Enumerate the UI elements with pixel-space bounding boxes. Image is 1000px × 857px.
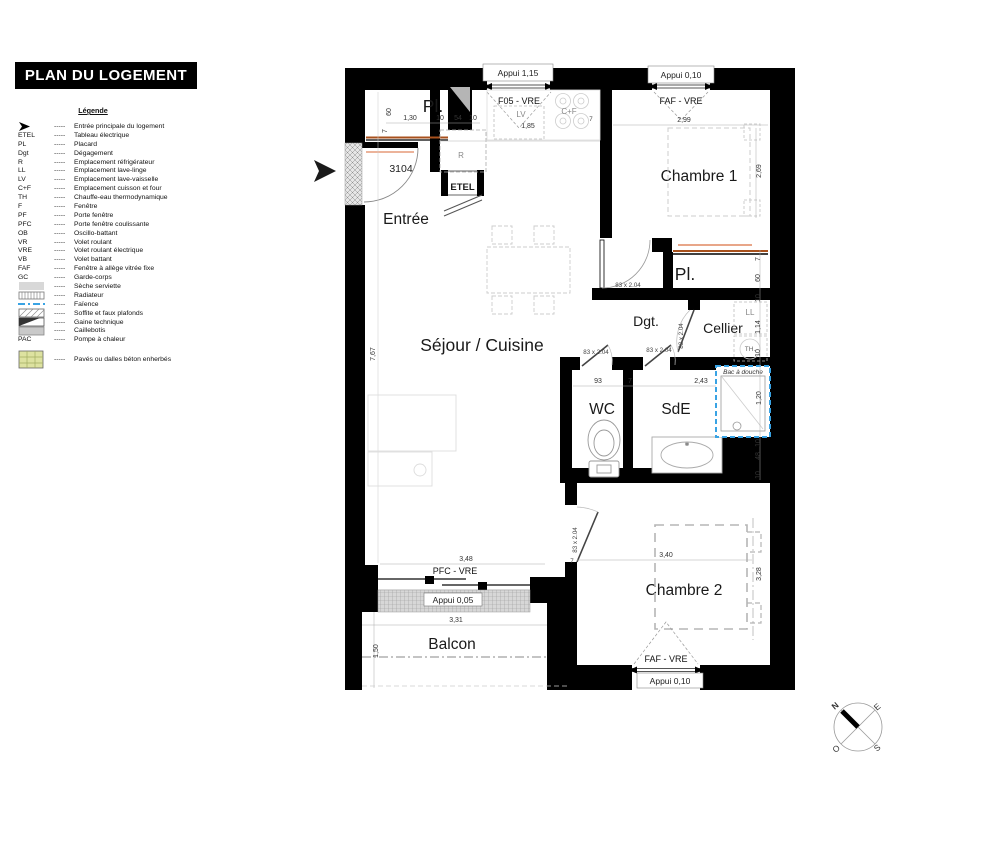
dim-label: 10 bbox=[755, 349, 762, 357]
entry-arrow-icon bbox=[314, 160, 336, 182]
unit-number: 3104 bbox=[389, 163, 413, 175]
dim-label: 7 bbox=[382, 129, 389, 133]
dim-label: 48 bbox=[755, 452, 762, 460]
room-label-entree: Entrée bbox=[383, 211, 429, 228]
sink bbox=[652, 437, 722, 473]
room-label-pl1: Pl. bbox=[423, 96, 443, 116]
dim-label: 7 bbox=[589, 116, 593, 123]
room-label-pl2: Pl. bbox=[675, 264, 695, 284]
dim-label: 3,40 bbox=[659, 552, 673, 559]
dim-label: 1,30 bbox=[403, 115, 417, 122]
door-leaf-chambre1 bbox=[600, 240, 604, 288]
dim-label: 54 bbox=[454, 115, 462, 122]
fixture-label-etel: ETEL bbox=[450, 182, 474, 193]
room-label-wc: WC bbox=[589, 401, 615, 418]
dim-label: 10 bbox=[755, 471, 762, 479]
compass-n: N bbox=[830, 700, 841, 712]
room-label-chambre1: Chambre 1 bbox=[661, 168, 738, 185]
dim-label: 3,48 bbox=[459, 556, 473, 563]
fixture-label-cf: C+F bbox=[561, 107, 576, 116]
dim-label: 1,50 bbox=[373, 644, 380, 658]
kitchen-island bbox=[368, 395, 456, 486]
room-label-sejour: Séjour / Cuisine bbox=[420, 335, 544, 355]
door-arc-chambre2 bbox=[577, 507, 598, 512]
fixture-label-th: TH. bbox=[745, 346, 756, 353]
entry-door-hatch bbox=[345, 143, 362, 205]
dim-label: 7,67 bbox=[370, 347, 377, 361]
dim-label: 7 bbox=[755, 257, 762, 261]
room-label-sde: SdE bbox=[661, 401, 690, 418]
window-label: PFC - VRE bbox=[433, 566, 478, 576]
fixture-label-lv: LV bbox=[516, 110, 526, 119]
compass-needle bbox=[842, 711, 858, 727]
dim-label: 1,20 bbox=[756, 391, 763, 405]
dim-label: 10 bbox=[755, 439, 762, 447]
compass-s: S bbox=[872, 742, 883, 754]
room-label-balcon: Balcon bbox=[428, 636, 475, 653]
window-label: FAF - VRE bbox=[644, 654, 687, 664]
appui-label: Appui 0,10 bbox=[650, 676, 691, 686]
door-size-label: 83 x 2.04 bbox=[583, 349, 609, 356]
dim-label: 2,43 bbox=[694, 378, 708, 385]
window-label: FAF - VRE bbox=[659, 96, 702, 106]
dim-label: 7 bbox=[628, 378, 632, 385]
room-label-chambre2: Chambre 2 bbox=[646, 582, 723, 599]
compass-o: O bbox=[830, 743, 842, 755]
dim-label: 10 bbox=[436, 115, 444, 122]
door-size-label: 83 x 2.04 bbox=[615, 282, 641, 289]
room-label-dgt: Dgt. bbox=[633, 313, 659, 329]
appui-label: Appui 0,10 bbox=[661, 70, 702, 80]
dim-label: 60 bbox=[386, 108, 393, 116]
fixture-label-ll: LL bbox=[746, 308, 755, 317]
dim-label: 3,31 bbox=[449, 617, 463, 624]
dim-label: 60 bbox=[755, 274, 762, 282]
room-label-cellier: Cellier bbox=[703, 320, 743, 336]
etel-door-lines bbox=[444, 195, 482, 216]
fixture-label-bac: Bac à douche bbox=[723, 369, 763, 376]
door-size-label: 83 x 2.04 bbox=[646, 347, 672, 354]
door-size-label: 83 x 2.04 bbox=[678, 323, 685, 349]
compass-rose: N E S O bbox=[830, 700, 883, 755]
dim-label: 2,99 bbox=[677, 117, 691, 124]
nightstand bbox=[744, 124, 760, 140]
floor-plan: 3104 Entrée Pl. 60 1,30 10 54 10 7 R ETE… bbox=[0, 0, 1000, 857]
dim-label: 10 bbox=[469, 115, 477, 122]
window-label: F05 - VRE bbox=[498, 96, 540, 106]
dim-label: 1,85 bbox=[521, 123, 535, 130]
dim-label: 10 bbox=[755, 294, 762, 302]
dim-label: 1,14 bbox=[755, 320, 762, 334]
door-size-label: 83 x 2.04 bbox=[572, 527, 579, 553]
toilet bbox=[588, 420, 620, 477]
appui-label: Appui 0,05 bbox=[433, 595, 474, 605]
nightstand bbox=[744, 200, 760, 216]
dining-table bbox=[487, 226, 570, 314]
compass-e: E bbox=[872, 701, 883, 713]
sliding-door-post bbox=[478, 582, 487, 590]
appui-label: Appui 1,15 bbox=[498, 68, 539, 78]
dim-label: 93 bbox=[594, 378, 602, 385]
entry-door-arc bbox=[364, 148, 418, 202]
bed-chambre2 bbox=[655, 525, 747, 629]
door-leaf-chambre2 bbox=[577, 512, 598, 562]
door-arc-chambre1 bbox=[602, 240, 650, 288]
dim-label: 2,69 bbox=[756, 164, 763, 178]
dim-label: 7 bbox=[570, 558, 574, 565]
sliding-door-post bbox=[425, 576, 434, 584]
dim-label: 3,28 bbox=[756, 567, 763, 581]
fixture-label-r: R bbox=[458, 151, 464, 160]
